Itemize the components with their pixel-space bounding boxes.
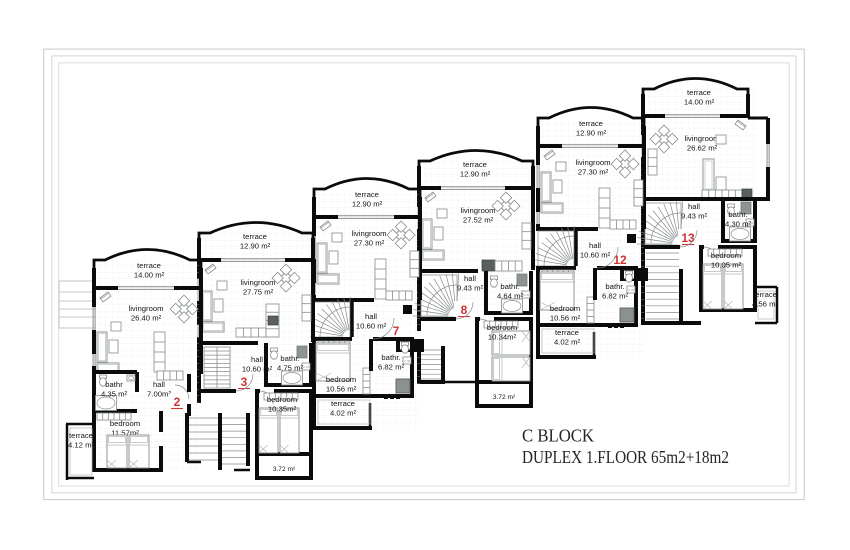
svg-text:12: 12 [613, 253, 627, 267]
svg-text:bedroom: bedroom [110, 419, 140, 428]
svg-text:9.43 m²: 9.43 m² [681, 212, 708, 221]
svg-text:terrace: terrace [137, 261, 161, 270]
svg-text:terrace: terrace [463, 160, 487, 169]
svg-text:bedroom: bedroom [711, 251, 741, 260]
svg-text:livingroom: livingroom [460, 206, 495, 215]
svg-text:livingroom: livingroom [351, 229, 386, 238]
svg-text:bathr.: bathr. [500, 282, 519, 291]
svg-text:4.02 m²: 4.02 m² [330, 409, 357, 418]
svg-text:26.62 m²: 26.62 m² [687, 144, 718, 153]
svg-text:10.34m²: 10.34m² [488, 333, 517, 342]
svg-text:9.43 m²: 9.43 m² [457, 284, 484, 293]
svg-text:4.56 m²: 4.56 m² [752, 300, 779, 309]
svg-text:27.75 m²: 27.75 m² [243, 288, 274, 297]
svg-text:terrace: terrace [687, 88, 711, 97]
svg-text:3.72 m²: 3.72 m² [273, 466, 296, 473]
svg-text:terrace: terrace [579, 119, 603, 128]
svg-text:hall: hall [251, 355, 263, 364]
svg-text:3.72 m²: 3.72 m² [493, 394, 516, 401]
svg-text:10.05 m²: 10.05 m² [711, 261, 742, 270]
svg-text:10.60 m²: 10.60 m² [580, 251, 611, 260]
svg-text:bathr: bathr [105, 380, 123, 389]
svg-text:terrace: terrace [753, 290, 777, 299]
svg-text:bathr.: bathr. [280, 354, 299, 363]
svg-text:livingroom: livingroom [684, 134, 719, 143]
svg-text:26.40 m²: 26.40 m² [131, 314, 162, 323]
svg-text:4.64 m²: 4.64 m² [497, 292, 524, 301]
svg-text:terrace: terrace [355, 190, 379, 199]
svg-text:4.02 m²: 4.02 m² [554, 338, 581, 347]
svg-text:C.W: C.W [303, 365, 309, 369]
svg-text:10.60 m²: 10.60 m² [356, 322, 387, 331]
svg-text:terrace: terrace [331, 399, 355, 408]
svg-text:livingroom: livingroom [240, 278, 275, 287]
svg-text:12.90 m²: 12.90 m² [352, 200, 383, 209]
svg-text:bedroom: bedroom [326, 375, 356, 384]
svg-text:hall: hall [464, 274, 476, 283]
svg-text:2: 2 [174, 395, 181, 409]
svg-text:12.90 m²: 12.90 m² [240, 242, 271, 251]
svg-text:6.82 m²: 6.82 m² [378, 363, 405, 372]
svg-text:6.82 m²: 6.82 m² [602, 292, 629, 301]
svg-text:terrace: terrace [555, 328, 579, 337]
svg-text:10.56 m²: 10.56 m² [326, 385, 357, 394]
svg-text:bathr.: bathr. [728, 210, 747, 219]
svg-text:12.90 m²: 12.90 m² [576, 129, 607, 138]
svg-text:bedroom: bedroom [487, 323, 517, 332]
svg-text:hall: hall [153, 380, 165, 389]
svg-text:13: 13 [681, 231, 695, 245]
svg-text:12.90 m²: 12.90 m² [460, 170, 491, 179]
svg-text:bathr.: bathr. [381, 353, 400, 362]
svg-text:DUPLEX 1.FLOOR 65m2+18m2: DUPLEX 1.FLOOR 65m2+18m2 [522, 447, 729, 467]
svg-text:hall: hall [589, 241, 601, 250]
svg-text:C.W: C.W [628, 288, 634, 292]
svg-text:14.00 m²: 14.00 m² [684, 98, 715, 107]
svg-text:4.12 m²: 4.12 m² [68, 441, 95, 450]
svg-text:hall: hall [688, 202, 700, 211]
svg-text:bedroom: bedroom [267, 395, 297, 404]
svg-text:4.75 m²: 4.75 m² [277, 364, 304, 373]
svg-text:livingroom: livingroom [128, 304, 163, 313]
svg-text:terrace: terrace [243, 232, 267, 241]
svg-text:7: 7 [393, 324, 400, 338]
svg-text:C.W: C.W [523, 293, 529, 297]
svg-text:C BLOCK: C BLOCK [522, 426, 594, 446]
svg-text:4.35 m²: 4.35 m² [101, 390, 128, 399]
svg-text:27.30 m²: 27.30 m² [354, 239, 385, 248]
svg-text:14.00 m²: 14.00 m² [134, 271, 165, 280]
svg-text:bathr.: bathr. [605, 282, 624, 291]
svg-text:10.56 m²: 10.56 m² [550, 314, 581, 323]
svg-text:27.52 m²: 27.52 m² [463, 216, 494, 225]
svg-text:7.00m²: 7.00m² [147, 390, 171, 399]
svg-text:livingroom: livingroom [575, 158, 610, 167]
svg-text:hall: hall [365, 312, 377, 321]
svg-text:4.30 m²: 4.30 m² [725, 220, 752, 229]
svg-text:C.W: C.W [404, 359, 410, 363]
svg-text:bedroom: bedroom [550, 304, 580, 313]
svg-text:terrace: terrace [69, 431, 93, 440]
svg-text:27.30 m²: 27.30 m² [578, 168, 609, 177]
svg-text:10.35m²: 10.35m² [268, 405, 297, 414]
